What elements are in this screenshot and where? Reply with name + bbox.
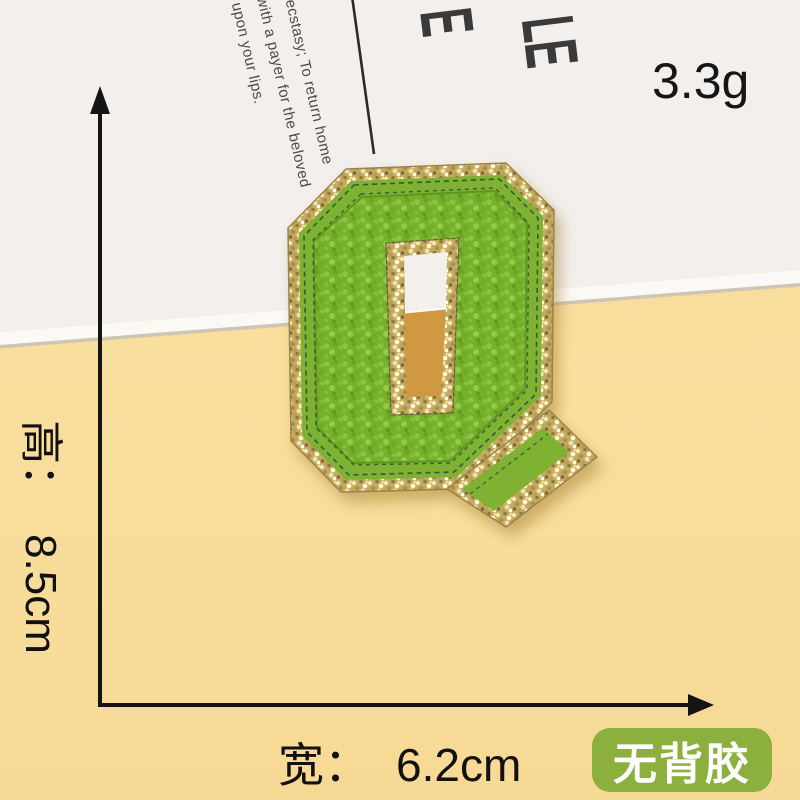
height-label: 高： bbox=[13, 420, 77, 508]
hole-window-table bbox=[405, 310, 446, 398]
width-label: 宽： bbox=[278, 729, 370, 795]
letter-q-patch bbox=[288, 163, 597, 527]
width-dimension-label: 宽： 6.2cm bbox=[278, 729, 521, 795]
card-big-letter-le: LE bbox=[505, 11, 595, 71]
height-dimension-label: 高： 8.5cm bbox=[13, 420, 77, 654]
product-photo bbox=[0, 0, 800, 800]
width-value: 6.2cm bbox=[396, 738, 521, 792]
no-adhesive-badge: 无背胶 bbox=[592, 728, 772, 792]
height-value: 8.5cm bbox=[15, 534, 65, 654]
weight-label: 3.3g bbox=[652, 52, 749, 110]
hole-window-paper bbox=[404, 252, 447, 311]
width-arrow-right-icon bbox=[688, 694, 714, 716]
